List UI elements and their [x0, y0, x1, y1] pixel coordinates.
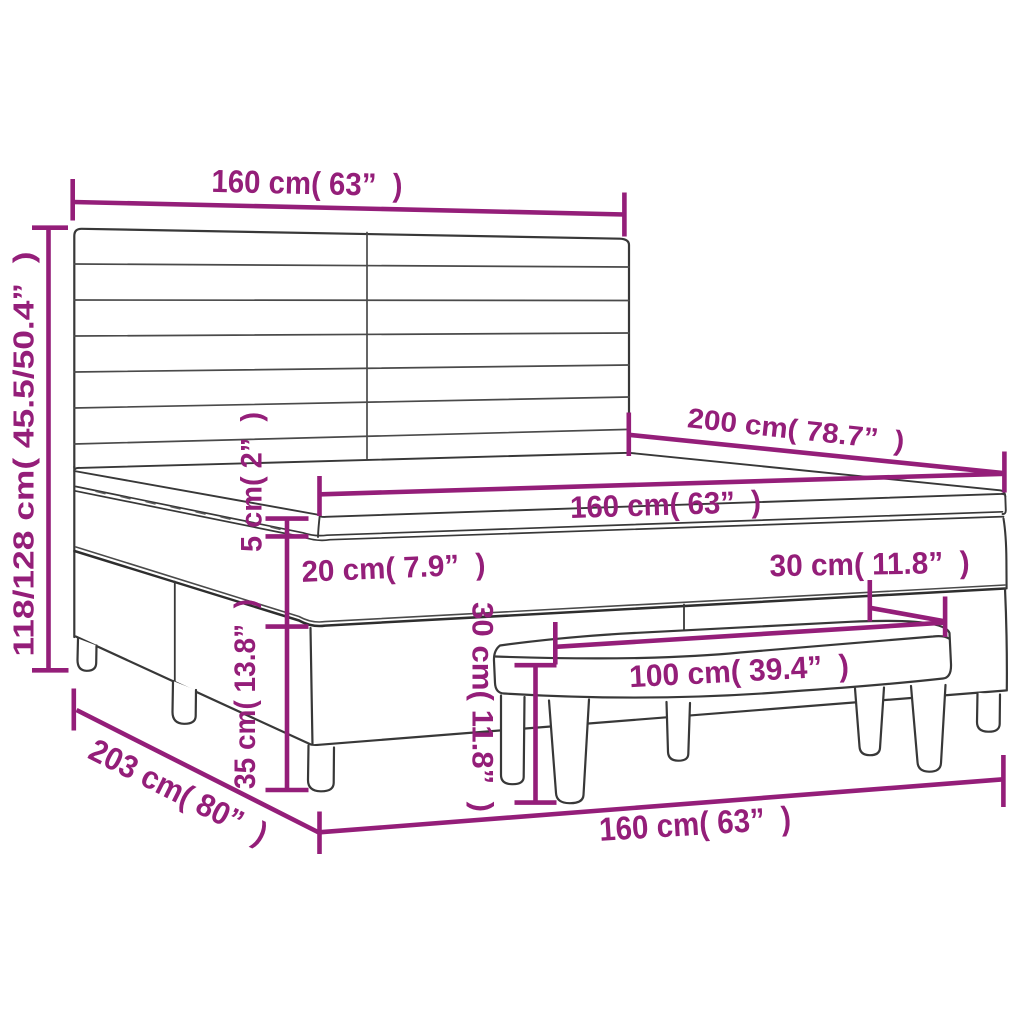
svg-text:160 cm( 63” ): 160 cm( 63” ): [211, 163, 403, 203]
svg-text:118/128 cm( 45.5/50.4” ): 118/128 cm( 45.5/50.4” ): [9, 252, 41, 657]
svg-text:5 cm( 2” ): 5 cm( 2” ): [236, 412, 269, 552]
svg-text:30 cm( 11.8” ): 30 cm( 11.8” ): [769, 545, 970, 583]
svg-text:160 cm( 63” ): 160 cm( 63” ): [569, 484, 761, 525]
svg-text:35 cm( 13.8” ): 35 cm( 13.8” ): [229, 599, 262, 789]
svg-text:30 cm( 11.8” ): 30 cm( 11.8” ): [466, 602, 499, 812]
